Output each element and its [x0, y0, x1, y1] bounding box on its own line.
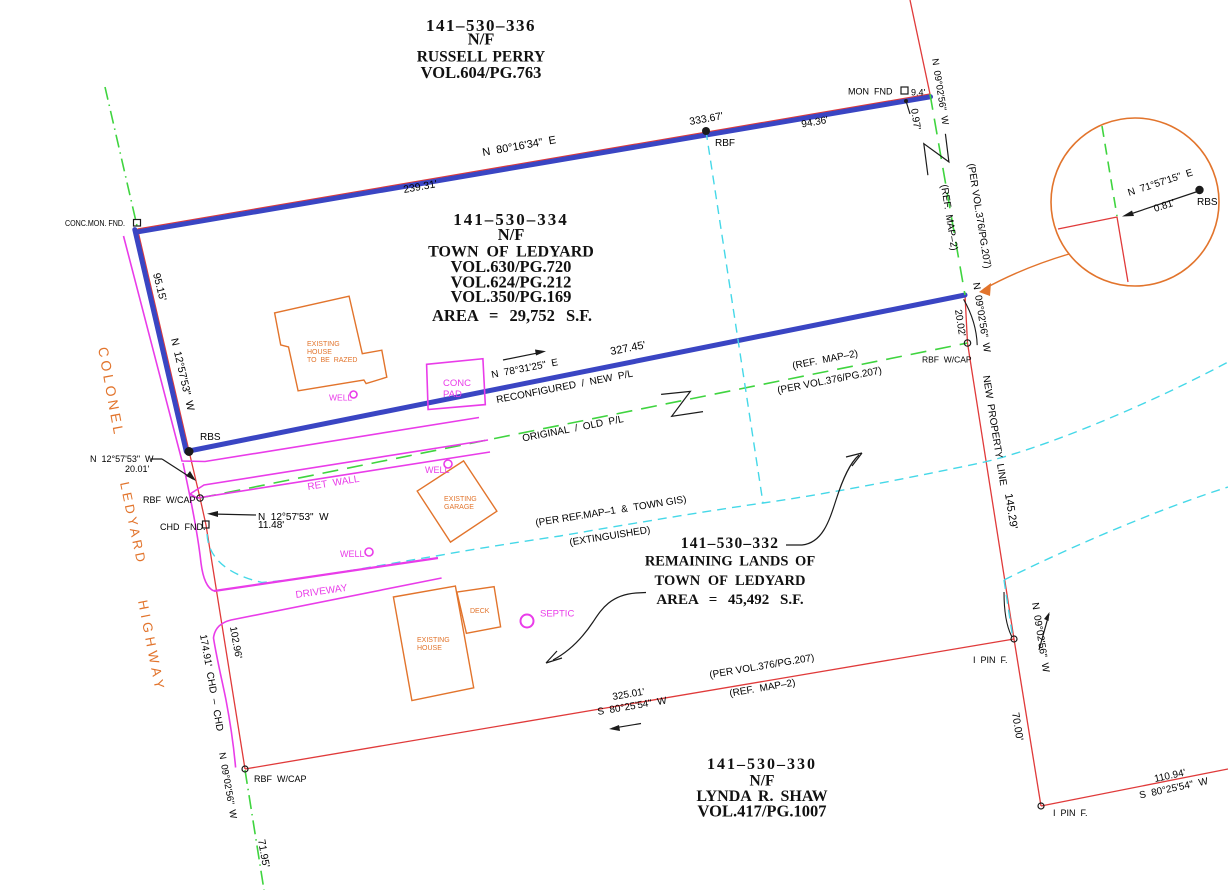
- svg-text:AREA = 29,752 S.F.: AREA = 29,752 S.F.: [432, 306, 592, 325]
- svg-text:141–530–332: 141–530–332: [681, 535, 779, 552]
- svg-text:MON FND: MON FND: [848, 87, 893, 97]
- svg-text:WELL: WELL: [425, 465, 450, 475]
- svg-text:9.4': 9.4': [911, 88, 926, 98]
- svg-text:RBF W/CAP: RBF W/CAP: [254, 774, 307, 784]
- svg-text:I PIN F.: I PIN F.: [973, 655, 1008, 665]
- svg-text:EXISTING: EXISTING: [417, 637, 450, 644]
- svg-text:WELL: WELL: [329, 393, 352, 403]
- svg-text:CHD FND.: CHD FND.: [160, 522, 206, 532]
- svg-text:EXISTING: EXISTING: [307, 341, 340, 348]
- svg-text:RBS: RBS: [200, 432, 221, 443]
- svg-text:RBF W/CAP: RBF W/CAP: [922, 355, 972, 365]
- svg-text:CONC: CONC: [443, 378, 471, 389]
- svg-text:N/F: N/F: [468, 30, 495, 49]
- svg-text:HOUSE: HOUSE: [417, 645, 442, 652]
- svg-text:WELL: WELL: [340, 549, 365, 559]
- svg-text:N/F: N/F: [498, 225, 525, 244]
- svg-text:REMAINING LANDS OF: REMAINING LANDS OF: [645, 554, 815, 570]
- svg-text:VOL.604/PG.763: VOL.604/PG.763: [421, 63, 542, 82]
- svg-text:VOL.350/PG.169: VOL.350/PG.169: [451, 287, 572, 306]
- svg-text:HOUSE: HOUSE: [307, 349, 332, 356]
- svg-text:SEPTIC: SEPTIC: [540, 609, 574, 620]
- svg-text:AREA = 45,492 S.F.: AREA = 45,492 S.F.: [656, 592, 804, 608]
- svg-text:TO BE RAZED: TO BE RAZED: [307, 357, 357, 364]
- svg-text:RBF: RBF: [715, 138, 735, 149]
- svg-text:RBF W/CAP: RBF W/CAP: [143, 495, 196, 505]
- svg-text:I PIN F.: I PIN F.: [1053, 808, 1088, 818]
- svg-text:N/F: N/F: [750, 773, 775, 790]
- svg-text:DECK: DECK: [470, 608, 490, 615]
- svg-text:11.48': 11.48': [258, 520, 284, 531]
- svg-text:RBS: RBS: [1197, 197, 1218, 208]
- svg-text:CONC.MON. FND.: CONC.MON. FND.: [65, 218, 125, 228]
- svg-text:EXISTING: EXISTING: [444, 496, 477, 503]
- svg-text:20.01': 20.01': [125, 464, 150, 474]
- svg-text:GARAGE: GARAGE: [444, 504, 474, 511]
- svg-text:N 12°57'53" W: N 12°57'53" W: [90, 454, 154, 464]
- svg-text:141–530–330: 141–530–330: [707, 756, 817, 773]
- svg-text:TOWN OF LEDYARD: TOWN OF LEDYARD: [655, 573, 806, 589]
- svg-text:PAD: PAD: [443, 389, 462, 400]
- svg-text:VOL.417/PG.1007: VOL.417/PG.1007: [698, 802, 827, 821]
